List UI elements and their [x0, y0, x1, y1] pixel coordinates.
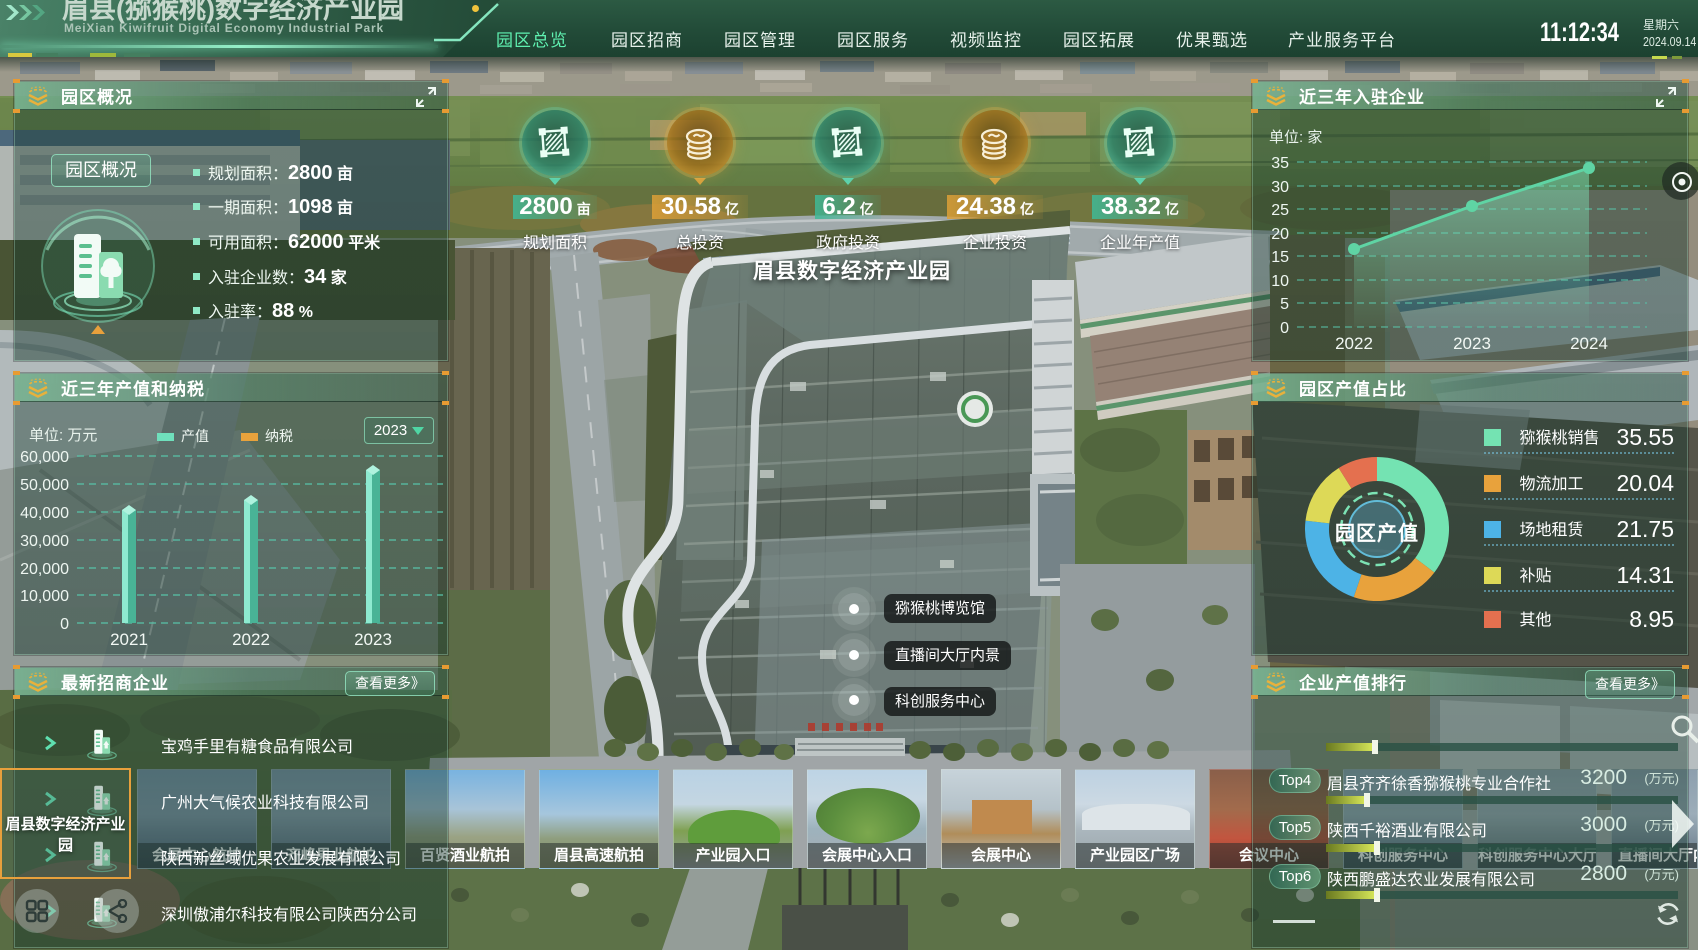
svg-text:10,000: 10,000	[20, 588, 69, 605]
svg-text:25: 25	[1271, 202, 1289, 219]
svg-text:20: 20	[1271, 226, 1289, 243]
svg-text:30: 30	[1271, 179, 1289, 196]
svg-text:0: 0	[1280, 320, 1289, 337]
svg-text:2024: 2024	[1570, 334, 1608, 352]
svg-text:20,000: 20,000	[20, 561, 69, 578]
svg-text:2021: 2021	[110, 630, 148, 649]
svg-text:30,000: 30,000	[20, 533, 69, 550]
svg-text:35: 35	[1271, 155, 1289, 172]
svg-text:15: 15	[1271, 249, 1289, 266]
svg-text:2022: 2022	[232, 630, 270, 649]
svg-text:50,000: 50,000	[20, 477, 69, 494]
svg-text:2022: 2022	[1335, 334, 1373, 352]
svg-text:2023: 2023	[354, 630, 392, 649]
svg-text:5: 5	[1280, 296, 1289, 313]
svg-text:0: 0	[60, 616, 69, 633]
svg-text:40,000: 40,000	[20, 505, 69, 522]
svg-text:60,000: 60,000	[20, 449, 69, 466]
svg-text:2023: 2023	[1453, 334, 1491, 352]
svg-text:10: 10	[1271, 273, 1289, 290]
